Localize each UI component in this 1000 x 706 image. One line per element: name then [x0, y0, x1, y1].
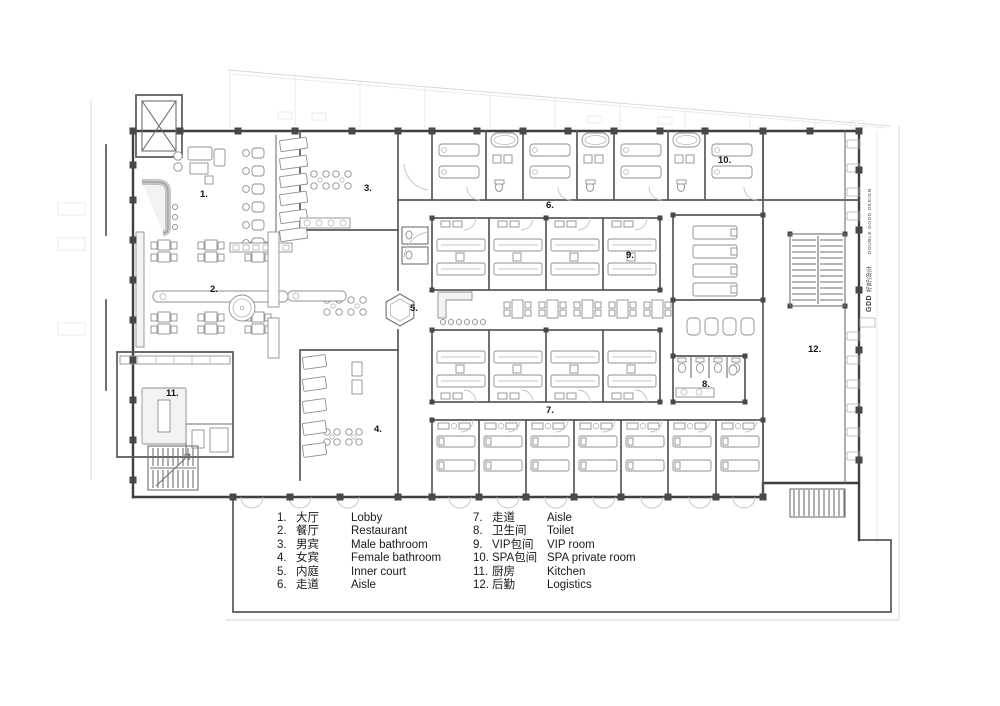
legend-cn: 走道: [296, 579, 351, 592]
legend-item: 9.VIP包间VIP room: [473, 539, 693, 552]
legend-cn: 餐厅: [296, 525, 351, 538]
room-label: 2.: [210, 284, 218, 295]
legend-num: 11.: [473, 566, 492, 579]
room-label: 1.: [200, 189, 208, 200]
watermark-cn: 好|好|设|计: [865, 265, 873, 292]
legend-en: Female bathroom: [351, 552, 441, 565]
legend-en: Toilet: [547, 525, 574, 538]
watermark-en: DOUBLE GOOD DESIGN: [867, 188, 872, 254]
legend-en: Kitchen: [547, 566, 585, 579]
legend-cn: 走道: [492, 512, 547, 525]
legend-column-right: 7.走道Aisle8.卫生间Toilet9.VIP包间VIP room10.SP…: [473, 512, 693, 592]
legend-cn: VIP包间: [492, 539, 547, 552]
legend-item: 3.男宾Male bathroom: [277, 539, 469, 552]
legend-item: 5.内庭Inner court: [277, 566, 469, 579]
room-label: 6.: [546, 200, 554, 211]
legend-en: Restaurant: [351, 525, 407, 538]
legend-en: Lobby: [351, 512, 382, 525]
legend-cn: 厨房: [492, 566, 547, 579]
room-label: 10.: [718, 155, 731, 166]
legend-item: 12.后勤Logistics: [473, 579, 693, 592]
floor-plan-page: 1.2.3.4.5.6.7.8.9.10.11.12. GDD 好|好|设|计 …: [0, 0, 1000, 706]
legend-num: 4.: [277, 552, 296, 565]
legend-item: 1.大厅Lobby: [277, 512, 469, 525]
legend-en: Aisle: [547, 512, 572, 525]
legend-item: 6.走道Aisle: [277, 579, 469, 592]
legend-cn: 后勤: [492, 579, 547, 592]
legend-en: SPA private room: [547, 552, 636, 565]
legend-num: 5.: [277, 566, 296, 579]
legend-num: 8.: [473, 525, 492, 538]
room-label: 12.: [808, 344, 821, 355]
room-label: 11.: [166, 388, 179, 399]
room-label: 7.: [546, 405, 554, 416]
legend-en: VIP room: [547, 539, 595, 552]
legend-en: Logistics: [547, 579, 592, 592]
legend-cn: 大厅: [296, 512, 351, 525]
legend-num: 3.: [277, 539, 296, 552]
legend-cn: 内庭: [296, 566, 351, 579]
room-label: 3.: [364, 183, 372, 194]
legend-column-left: 1.大厅Lobby2.餐厅Restaurant3.男宾Male bathroom…: [277, 512, 469, 592]
legend-item: 2.餐厅Restaurant: [277, 525, 469, 538]
legend-cn: 女宾: [296, 552, 351, 565]
legend-item: 7.走道Aisle: [473, 512, 693, 525]
legend-cn: SPA包间: [492, 552, 547, 565]
designer-watermark: GDD 好|好|设|计 DOUBLE GOOD DESIGN: [865, 188, 873, 312]
room-label: 9.: [626, 250, 634, 261]
room-label: 8.: [702, 379, 710, 390]
legend-num: 12.: [473, 579, 492, 592]
legend-num: 10.: [473, 552, 492, 565]
legend-num: 7.: [473, 512, 492, 525]
room-label: 5.: [410, 303, 418, 314]
legend-num: 1.: [277, 512, 296, 525]
legend-item: 4.女宾Female bathroom: [277, 552, 469, 565]
legend-item: 11.厨房Kitchen: [473, 566, 693, 579]
legend-en: Aisle: [351, 579, 376, 592]
legend-item: 10.SPA包间SPA private room: [473, 552, 693, 565]
legend-num: 6.: [277, 579, 296, 592]
room-label: 4.: [374, 424, 382, 435]
watermark-logo: GDD: [866, 295, 873, 312]
floor-plan-drawing: 1.2.3.4.5.6.7.8.9.10.11.12. GDD 好|好|设|计 …: [0, 0, 1000, 706]
legend-item: 8.卫生间Toilet: [473, 525, 693, 538]
legend-num: 9.: [473, 539, 492, 552]
legend-num: 2.: [277, 525, 296, 538]
legend-en: Male bathroom: [351, 539, 428, 552]
legend-cn: 男宾: [296, 539, 351, 552]
legend-en: Inner court: [351, 566, 406, 579]
legend-cn: 卫生间: [492, 525, 547, 538]
